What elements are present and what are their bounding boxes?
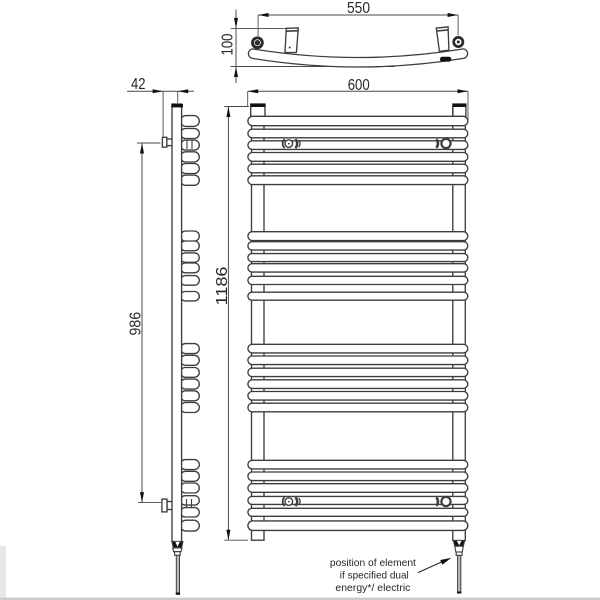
svg-text:position of element: position of element (330, 557, 416, 569)
svg-text:42: 42 (131, 76, 146, 93)
svg-text:if specified dual: if specified dual (340, 570, 409, 582)
svg-text:energy*/ electric: energy*/ electric (335, 582, 410, 594)
svg-text:100: 100 (219, 33, 236, 55)
